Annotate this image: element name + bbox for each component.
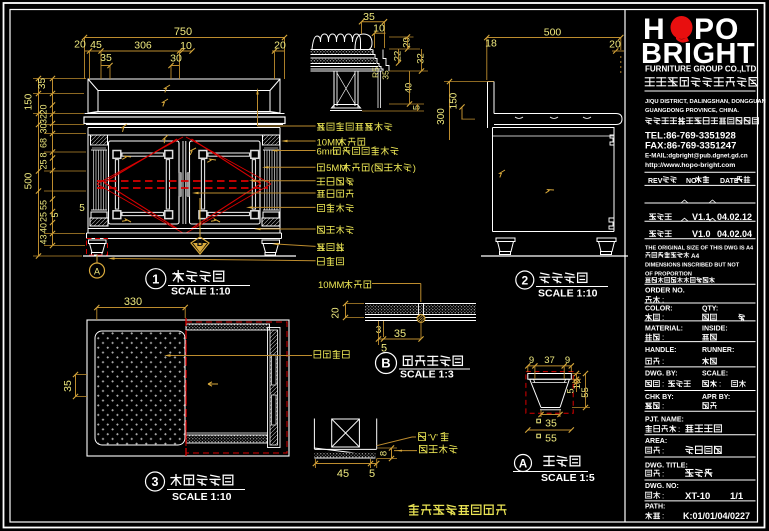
svg-text:CHK BY:: CHK BY: bbox=[645, 394, 674, 401]
svg-text:30: 30 bbox=[170, 53, 182, 65]
svg-text:8: 8 bbox=[39, 152, 49, 157]
svg-text:306: 306 bbox=[134, 40, 152, 52]
svg-text:35: 35 bbox=[363, 11, 375, 23]
svg-text:35: 35 bbox=[100, 52, 112, 64]
svg-text:55: 55 bbox=[39, 200, 49, 210]
svg-text:35: 35 bbox=[37, 78, 48, 90]
svg-text:5: 5 bbox=[412, 105, 423, 110]
svg-text:RUNNER:: RUNNER: bbox=[702, 347, 734, 354]
svg-text:PATH:: PATH: bbox=[645, 504, 665, 511]
svg-text::: : bbox=[662, 447, 664, 456]
svg-text:PJT. NAME:: PJT. NAME: bbox=[645, 417, 684, 424]
svg-text:40: 40 bbox=[39, 223, 49, 233]
svg-text:DWG. NO:: DWG. NO: bbox=[645, 483, 679, 490]
svg-text:QTY:: QTY: bbox=[702, 306, 718, 313]
svg-text:20: 20 bbox=[402, 37, 413, 48]
svg-text:20: 20 bbox=[74, 39, 86, 51]
svg-text:SCALE 1:5: SCALE 1:5 bbox=[541, 472, 595, 484]
svg-text:43: 43 bbox=[39, 234, 49, 244]
svg-text:25: 25 bbox=[39, 212, 49, 222]
svg-text:500: 500 bbox=[544, 27, 562, 39]
svg-text:150: 150 bbox=[449, 92, 460, 109]
svg-text:AREA:: AREA: bbox=[645, 438, 667, 445]
svg-text:A: A bbox=[519, 458, 527, 470]
svg-text::: : bbox=[719, 380, 721, 389]
svg-text:HANDLE:: HANDLE: bbox=[645, 347, 677, 354]
svg-text:V1.0: V1.0 bbox=[692, 229, 711, 239]
svg-text:5: 5 bbox=[79, 203, 85, 214]
svg-text:INSIDE:: INSIDE: bbox=[702, 325, 728, 332]
svg-text:REV: REV bbox=[648, 178, 663, 185]
svg-text:MATERIAL:: MATERIAL: bbox=[645, 325, 683, 332]
svg-text:SCALE 1:10: SCALE 1:10 bbox=[171, 286, 231, 298]
svg-text:A4: A4 bbox=[691, 253, 700, 260]
svg-text:300: 300 bbox=[436, 108, 447, 125]
svg-text:E-MAIL:dgbright@pub.dgnet.gd.c: E-MAIL:dgbright@pub.dgnet.gd.cn bbox=[645, 153, 748, 160]
svg-text:1/1: 1/1 bbox=[730, 491, 744, 502]
svg-text:6mm: 6mm bbox=[317, 146, 338, 157]
svg-text:GUANGDONG PROVINCE, CHINA.: GUANGDONG PROVINCE, CHINA. bbox=[645, 108, 739, 114]
svg-text:20: 20 bbox=[609, 39, 621, 51]
svg-text:SCALE:: SCALE: bbox=[702, 370, 728, 377]
svg-text:35: 35 bbox=[381, 70, 391, 80]
svg-text:http://www.hopo-bright.com: http://www.hopo-bright.com bbox=[645, 162, 735, 169]
svg-text::: : bbox=[662, 380, 664, 389]
svg-text:SCALE 1:10: SCALE 1:10 bbox=[538, 288, 598, 300]
svg-text::: : bbox=[662, 470, 664, 479]
svg-text::: : bbox=[662, 333, 664, 342]
svg-text:37: 37 bbox=[544, 355, 555, 366]
svg-text:750: 750 bbox=[174, 26, 192, 38]
svg-text:): ) bbox=[413, 163, 416, 174]
svg-text:20: 20 bbox=[39, 104, 49, 114]
svg-text:XT-10: XT-10 bbox=[685, 491, 710, 502]
svg-text:B: B bbox=[381, 356, 390, 371]
svg-text::: : bbox=[662, 492, 664, 501]
svg-text:32: 32 bbox=[39, 114, 49, 124]
svg-text:18: 18 bbox=[485, 38, 497, 50]
svg-text:45: 45 bbox=[337, 468, 349, 480]
svg-text:25: 25 bbox=[39, 159, 49, 169]
svg-text:5: 5 bbox=[369, 468, 375, 480]
svg-text:04.02.04: 04.02.04 bbox=[717, 229, 752, 239]
svg-text:K:01/01/04/0227: K:01/01/04/0227 bbox=[683, 511, 750, 521]
svg-text:3: 3 bbox=[152, 475, 159, 489]
svg-text::: : bbox=[678, 425, 680, 434]
svg-text:JIQU DISTRICT, DALINGSHAN, DON: JIQU DISTRICT, DALINGSHAN, DONGGUAN bbox=[645, 99, 766, 105]
svg-text:330: 330 bbox=[124, 296, 142, 308]
svg-text:35: 35 bbox=[394, 328, 406, 340]
svg-text::: : bbox=[662, 512, 664, 521]
svg-text:ORDER NO.: ORDER NO. bbox=[645, 288, 685, 295]
svg-text:150: 150 bbox=[24, 93, 35, 110]
svg-text:DWG. TITLE:: DWG. TITLE: bbox=[645, 463, 688, 470]
svg-text:35: 35 bbox=[545, 418, 557, 430]
svg-text::: : bbox=[662, 357, 664, 366]
svg-text:‘V’: ‘V’ bbox=[428, 433, 438, 443]
svg-text:8: 8 bbox=[379, 451, 390, 456]
svg-text:DWG. BY:: DWG. BY: bbox=[645, 370, 678, 377]
svg-text:5: 5 bbox=[50, 212, 60, 217]
svg-text:30: 30 bbox=[39, 123, 49, 133]
svg-text:SCALE 1:10: SCALE 1:10 bbox=[172, 491, 232, 503]
svg-text:10MM: 10MM bbox=[318, 280, 344, 291]
svg-text:V1.1: V1.1 bbox=[692, 212, 711, 222]
svg-text:2: 2 bbox=[521, 273, 528, 287]
svg-text:COLOR:: COLOR: bbox=[645, 306, 673, 313]
svg-text:R5: R5 bbox=[371, 67, 381, 78]
svg-text:APR BY:: APR BY: bbox=[702, 394, 730, 401]
svg-text:22: 22 bbox=[393, 51, 404, 62]
svg-text:NO: NO bbox=[686, 178, 697, 185]
svg-text:10: 10 bbox=[180, 40, 192, 52]
svg-text:DIMENSIONS INSCRIBED BUT NOT: DIMENSIONS INSCRIBED BUT NOT bbox=[645, 262, 740, 268]
svg-text:20: 20 bbox=[331, 307, 342, 319]
svg-text::: : bbox=[662, 402, 664, 411]
svg-text:DATE: DATE bbox=[720, 178, 739, 185]
svg-text:A: A bbox=[94, 267, 100, 277]
svg-text:B: B bbox=[197, 238, 204, 248]
svg-text:SCALE 1:3: SCALE 1:3 bbox=[400, 369, 454, 381]
svg-text:55: 55 bbox=[545, 433, 557, 445]
svg-text:FAX:86-769-3351247: FAX:86-769-3351247 bbox=[645, 141, 736, 152]
svg-text:THE ORIGINAL SIZE OF THIS DWG: THE ORIGINAL SIZE OF THIS DWG IS A4 bbox=[645, 246, 754, 252]
svg-text:500: 500 bbox=[24, 172, 35, 189]
svg-text:04.02.12: 04.02.12 bbox=[717, 212, 752, 222]
svg-text:1: 1 bbox=[152, 272, 159, 287]
svg-text:OF PROPORTION: OF PROPORTION bbox=[645, 272, 692, 278]
svg-text:FURNITURE GROUP CO.,LTD.: FURNITURE GROUP CO.,LTD. bbox=[645, 65, 758, 74]
svg-text:35: 35 bbox=[62, 380, 74, 392]
svg-text:40: 40 bbox=[404, 83, 415, 94]
svg-text:32: 32 bbox=[416, 53, 427, 64]
svg-text:68: 68 bbox=[39, 138, 49, 148]
